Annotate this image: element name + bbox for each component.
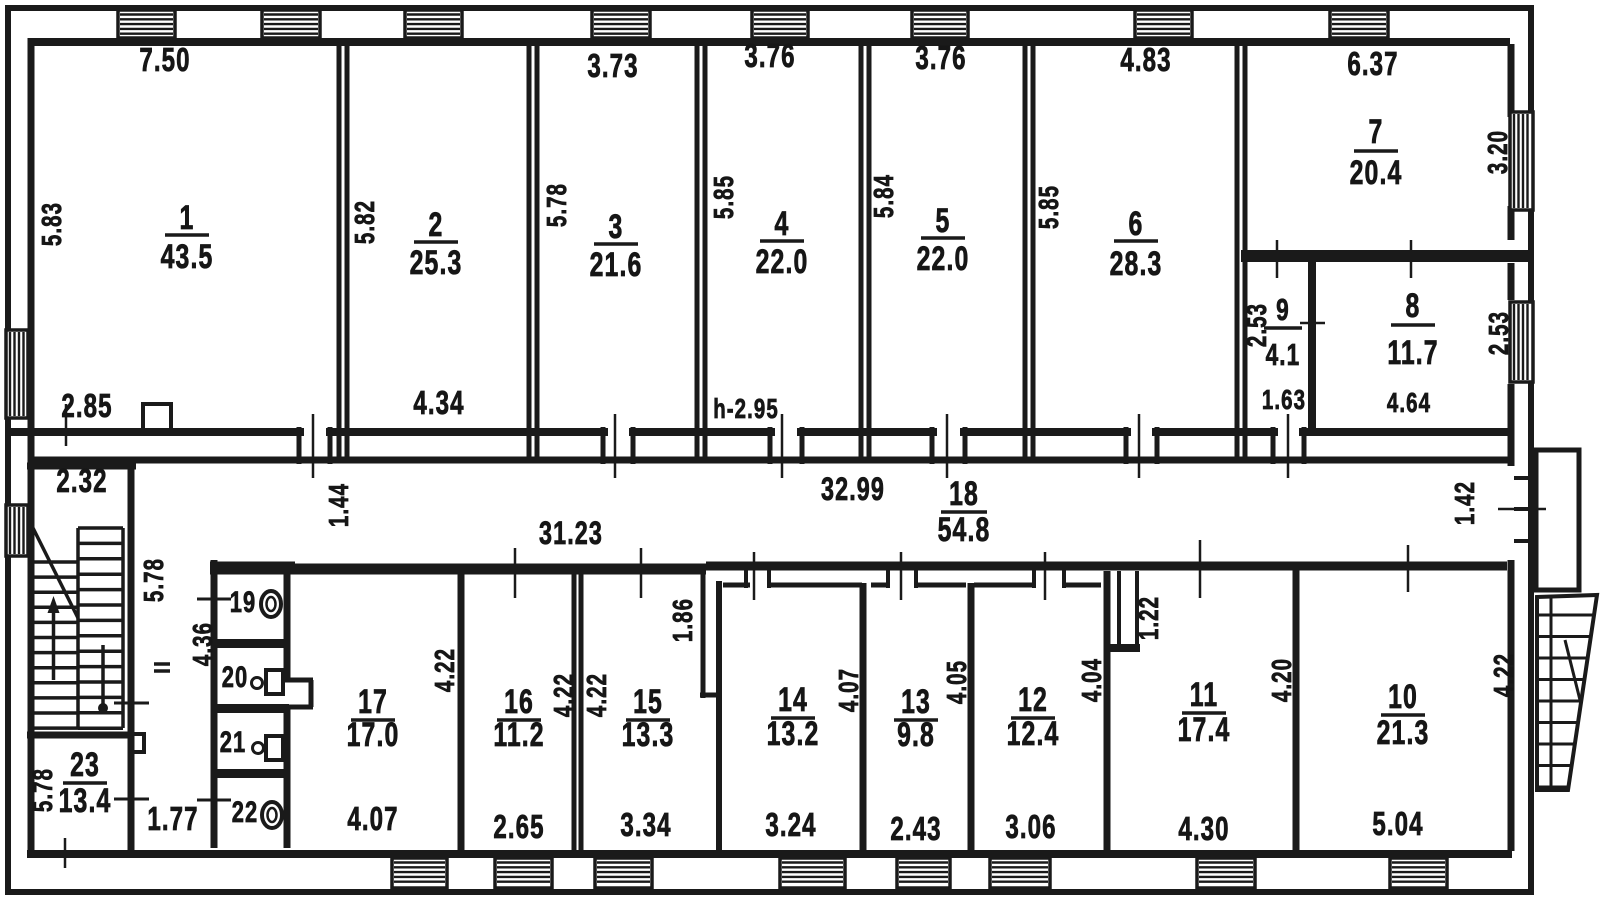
- svg-text:1.22: 1.22: [1134, 596, 1165, 640]
- svg-text:25.3: 25.3: [410, 244, 463, 282]
- svg-text:21.6: 21.6: [590, 246, 643, 284]
- svg-text:32.99: 32.99: [821, 471, 885, 506]
- svg-text:9: 9: [1276, 291, 1290, 326]
- svg-text:7: 7: [1369, 113, 1384, 151]
- svg-text:4.22: 4.22: [1489, 653, 1520, 697]
- svg-text:1: 1: [180, 199, 195, 237]
- svg-text:13.2: 13.2: [767, 715, 820, 753]
- svg-text:18: 18: [949, 475, 979, 513]
- svg-text:4.83: 4.83: [1120, 42, 1171, 79]
- svg-text:17.0: 17.0: [347, 716, 400, 754]
- svg-text:13.4: 13.4: [59, 782, 112, 820]
- svg-text:3.73: 3.73: [587, 48, 638, 85]
- svg-text:22.0: 22.0: [756, 243, 809, 281]
- svg-text:22.0: 22.0: [917, 240, 970, 278]
- svg-text:5.78: 5.78: [28, 768, 59, 812]
- svg-text:7.50: 7.50: [139, 42, 190, 79]
- svg-text:12.4: 12.4: [1007, 715, 1060, 753]
- svg-text:3: 3: [609, 208, 624, 246]
- svg-text:4: 4: [775, 205, 790, 243]
- svg-text:2.32: 2.32: [56, 463, 107, 500]
- svg-text:43.5: 43.5: [161, 238, 214, 276]
- svg-text:4.22: 4.22: [549, 673, 580, 717]
- svg-text:54.8: 54.8: [938, 511, 991, 549]
- svg-text:5.83: 5.83: [37, 202, 68, 246]
- svg-text:9.8: 9.8: [897, 716, 935, 754]
- svg-text:4.05: 4.05: [942, 660, 973, 704]
- svg-text:31.23: 31.23: [539, 515, 603, 550]
- svg-text:13.3: 13.3: [622, 716, 675, 754]
- svg-text:3.76: 3.76: [915, 40, 966, 77]
- svg-text:4.22: 4.22: [430, 648, 461, 692]
- svg-text:8: 8: [1406, 287, 1421, 325]
- svg-text:2.53: 2.53: [1484, 311, 1515, 355]
- svg-text:3.76: 3.76: [744, 38, 795, 75]
- svg-text:2: 2: [429, 206, 444, 244]
- svg-text:5.85: 5.85: [709, 175, 740, 219]
- svg-text:14: 14: [778, 681, 808, 719]
- svg-text:5.78: 5.78: [542, 183, 573, 227]
- svg-text:6: 6: [1129, 205, 1144, 243]
- svg-text:h-2.95: h-2.95: [713, 394, 779, 425]
- svg-text:11: 11: [1190, 676, 1218, 714]
- svg-text:4.36: 4.36: [188, 622, 219, 666]
- svg-text:4.07: 4.07: [834, 668, 865, 712]
- svg-text:21.3: 21.3: [1377, 714, 1430, 752]
- svg-text:5.04: 5.04: [1372, 806, 1423, 843]
- svg-text:5: 5: [936, 202, 951, 240]
- svg-text:22: 22: [232, 795, 259, 829]
- svg-text:19: 19: [230, 585, 257, 619]
- svg-text:4.22: 4.22: [582, 673, 613, 717]
- svg-text:3.34: 3.34: [620, 807, 671, 844]
- svg-text:5.82: 5.82: [350, 200, 381, 244]
- svg-text:6.37: 6.37: [1347, 46, 1398, 83]
- svg-text:1.42: 1.42: [1450, 481, 1481, 525]
- svg-text:28.3: 28.3: [1110, 245, 1163, 283]
- svg-text:17.4: 17.4: [1178, 711, 1231, 749]
- svg-text:1.77: 1.77: [147, 801, 198, 838]
- svg-text:2.85: 2.85: [61, 388, 112, 425]
- svg-text:3.06: 3.06: [1005, 809, 1056, 846]
- svg-text:20.4: 20.4: [1350, 154, 1403, 192]
- svg-text:23: 23: [70, 746, 100, 784]
- svg-text:5.78: 5.78: [139, 558, 170, 602]
- svg-text:5.85: 5.85: [1034, 185, 1065, 229]
- svg-text:4.30: 4.30: [1178, 811, 1229, 848]
- svg-text:4.34: 4.34: [413, 385, 464, 422]
- svg-text:11.2: 11.2: [493, 716, 544, 754]
- svg-text:4.07: 4.07: [347, 801, 398, 838]
- svg-text:1.63: 1.63: [1262, 385, 1306, 416]
- svg-text:2.65: 2.65: [493, 809, 544, 846]
- svg-text:10: 10: [1388, 678, 1418, 716]
- svg-text:11.7: 11.7: [1387, 334, 1438, 372]
- svg-text:1.86: 1.86: [668, 598, 699, 642]
- svg-text:1.44: 1.44: [324, 483, 355, 527]
- svg-text:4.04: 4.04: [1077, 658, 1108, 702]
- svg-text:2.53: 2.53: [1242, 303, 1273, 347]
- svg-text:5.84: 5.84: [869, 174, 900, 218]
- svg-text:20: 20: [222, 660, 249, 694]
- svg-text:4.20: 4.20: [1267, 658, 1298, 702]
- svg-text:4.64: 4.64: [1387, 388, 1431, 419]
- svg-text:12: 12: [1018, 681, 1048, 719]
- svg-text:3.24: 3.24: [765, 807, 816, 844]
- svg-text:2.43: 2.43: [890, 811, 941, 848]
- svg-text:21: 21: [220, 725, 247, 759]
- svg-text:3.20: 3.20: [1483, 130, 1514, 174]
